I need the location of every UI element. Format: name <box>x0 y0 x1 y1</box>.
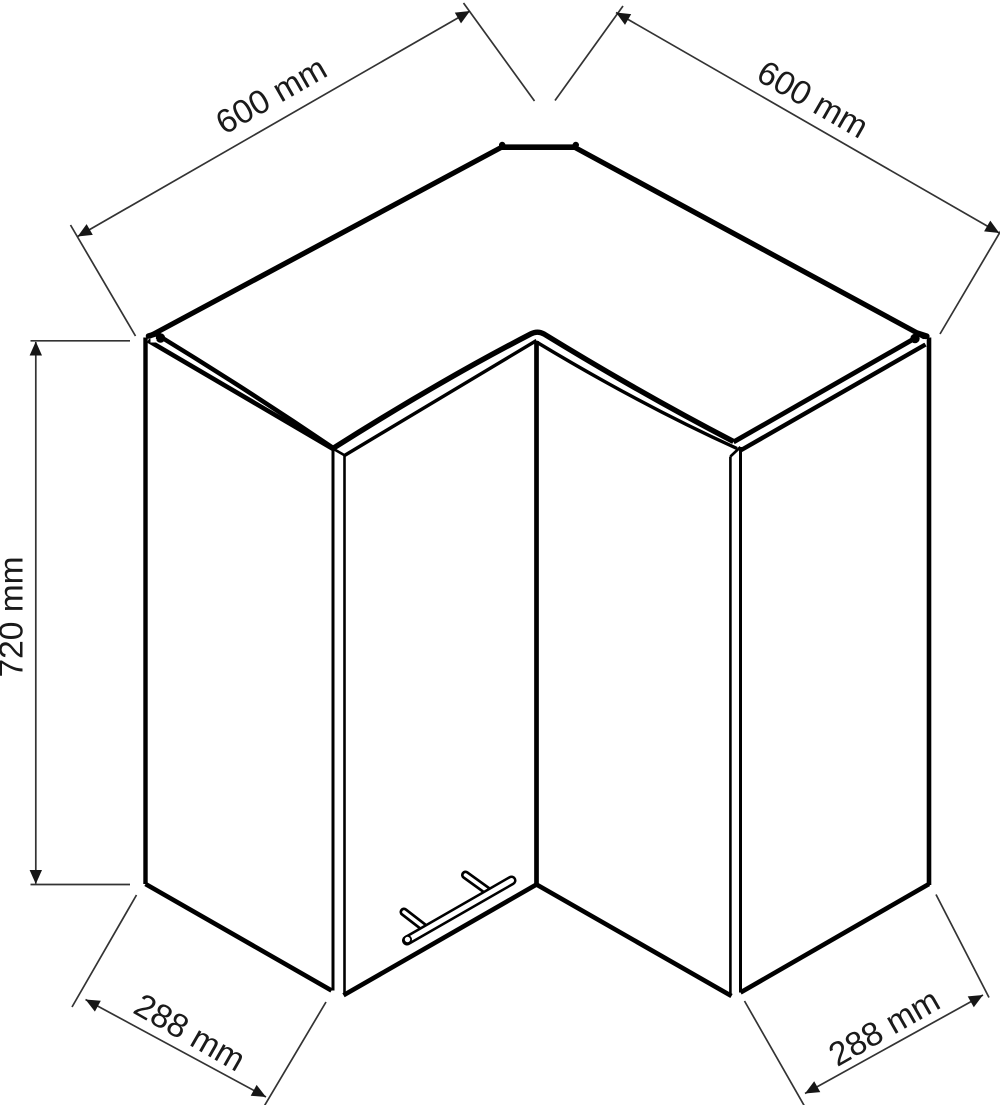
svg-text:720 mm: 720 mm <box>0 556 31 677</box>
